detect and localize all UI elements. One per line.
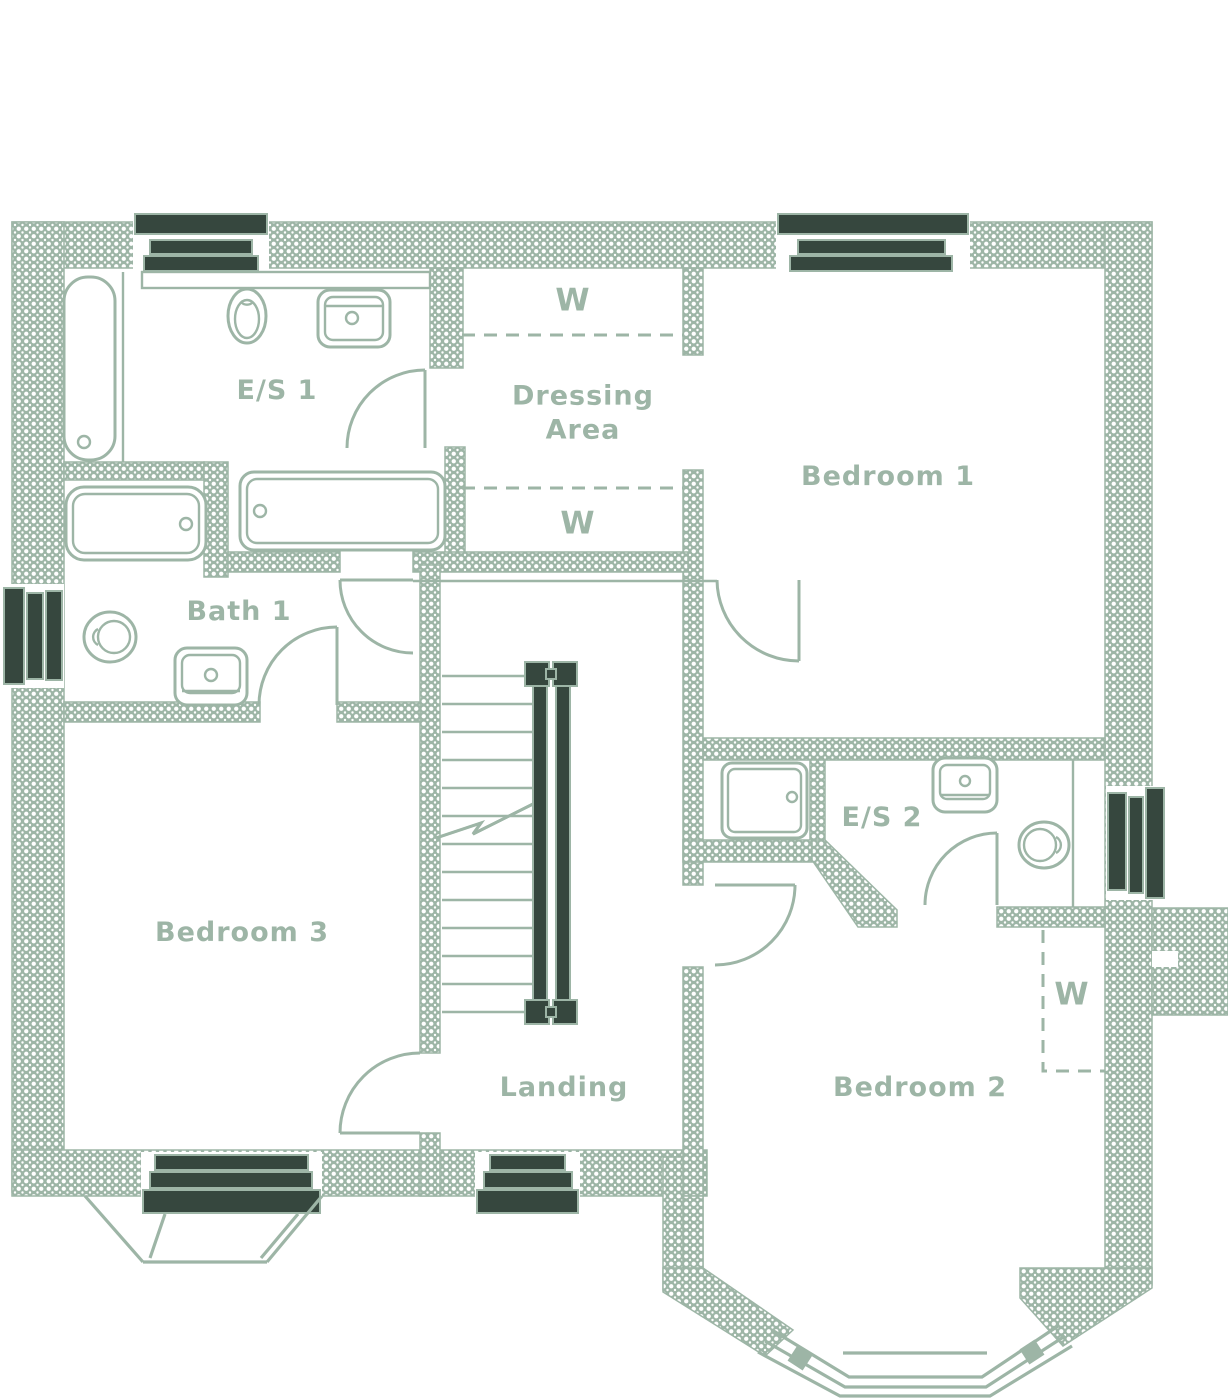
floor-plan: E/S 1 Dressing Area W W Bedroom 1 Bath 1…	[0, 0, 1228, 1400]
wardrobe-label-top: W	[555, 282, 590, 321]
window-bedroom1-top-icon	[776, 214, 970, 271]
room-label-dressing-line2: Area	[512, 413, 654, 447]
door-landing-corridor	[340, 580, 413, 653]
toilet-icon-es1	[228, 289, 266, 343]
window-es1-top-icon	[133, 214, 269, 271]
room-label-landing: Landing	[500, 1071, 629, 1105]
bay-window-bedroom2	[663, 1268, 1152, 1396]
window-landing-bottom-icon	[475, 1152, 580, 1214]
floor-plan-drawing	[0, 0, 1228, 1400]
room-label-es2: E/S 2	[842, 801, 923, 835]
toilet-icon-bath1	[84, 612, 136, 662]
toilet-icon-es2	[1019, 822, 1069, 868]
basin-icon-bath1	[175, 648, 247, 705]
door-bath1	[259, 627, 337, 705]
basin-icon-es2	[933, 758, 997, 812]
room-label-bedroom1: Bedroom 1	[801, 460, 975, 494]
door-es1	[347, 370, 425, 448]
room-label-dressing-line1: Dressing	[512, 379, 654, 413]
room-label-bath1: Bath 1	[186, 595, 291, 629]
window-es2-right-icon	[1106, 786, 1166, 900]
room-label-bedroom2: Bedroom 2	[833, 1071, 1007, 1105]
room-label-dressing: Dressing Area	[512, 379, 654, 447]
room-label-es1: E/S 1	[237, 374, 318, 408]
wardrobe-label-bedroom2: W	[1054, 976, 1089, 1015]
stair-treads	[442, 676, 535, 1012]
counter-icon	[142, 272, 430, 288]
staircase	[436, 662, 577, 1024]
room-label-bedroom3: Bedroom 3	[155, 916, 329, 950]
window-bath1-left-icon	[2, 584, 64, 688]
window-bedroom3-bottom-icon	[141, 1152, 322, 1214]
door-bedroom2	[715, 885, 795, 965]
bath-icon-es1-second	[240, 472, 445, 550]
bath-icon-bath1	[66, 487, 206, 560]
door-bedroom3	[340, 1053, 420, 1133]
shower-tray-icon-es2	[722, 763, 807, 838]
stair-handrails	[525, 662, 577, 1024]
basin-icon-es1	[318, 290, 390, 347]
door-es2	[925, 833, 997, 905]
wardrobe-label-bottom: W	[560, 505, 595, 544]
door-bedroom1	[717, 580, 799, 661]
bath-icon-es1-shower	[64, 277, 115, 460]
